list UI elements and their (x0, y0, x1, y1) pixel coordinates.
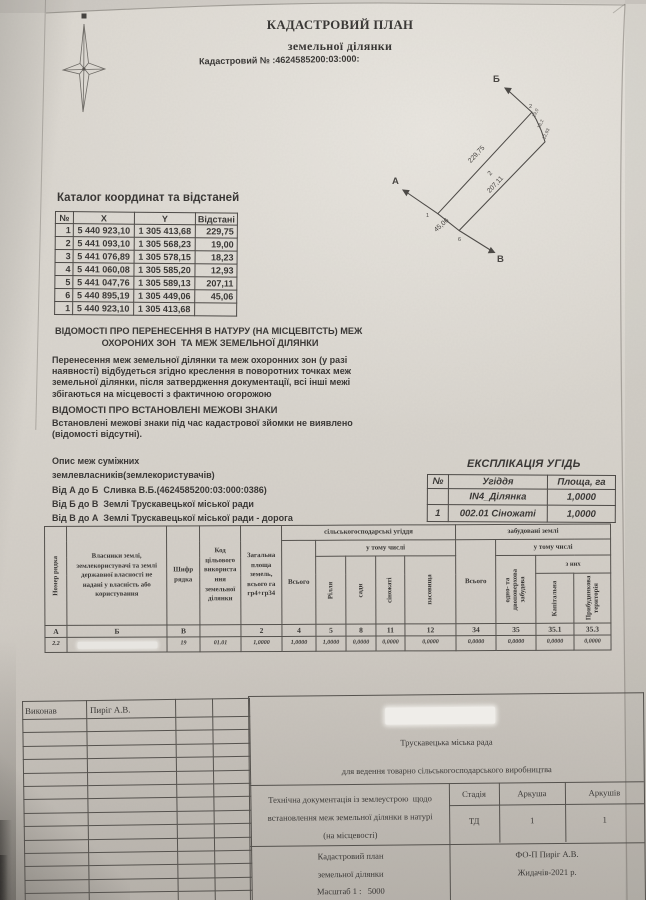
svg-text:18,2: 18,2 (536, 118, 544, 129)
svg-text:2: 2 (529, 104, 532, 110)
svg-text:207,11: 207,11 (486, 175, 505, 195)
svg-text:45,06: 45,06 (433, 217, 450, 234)
svg-text:В: В (497, 254, 504, 265)
svg-text:12,93: 12,93 (541, 127, 550, 140)
svg-text:1: 1 (426, 213, 429, 219)
svg-text:2: 2 (486, 169, 494, 177)
svg-text:6: 6 (458, 237, 461, 243)
svg-text:Б: Б (493, 74, 500, 85)
svg-text:19,0: 19,0 (531, 107, 539, 118)
svg-text:А: А (392, 176, 399, 187)
svg-text:229,75: 229,75 (467, 145, 486, 165)
